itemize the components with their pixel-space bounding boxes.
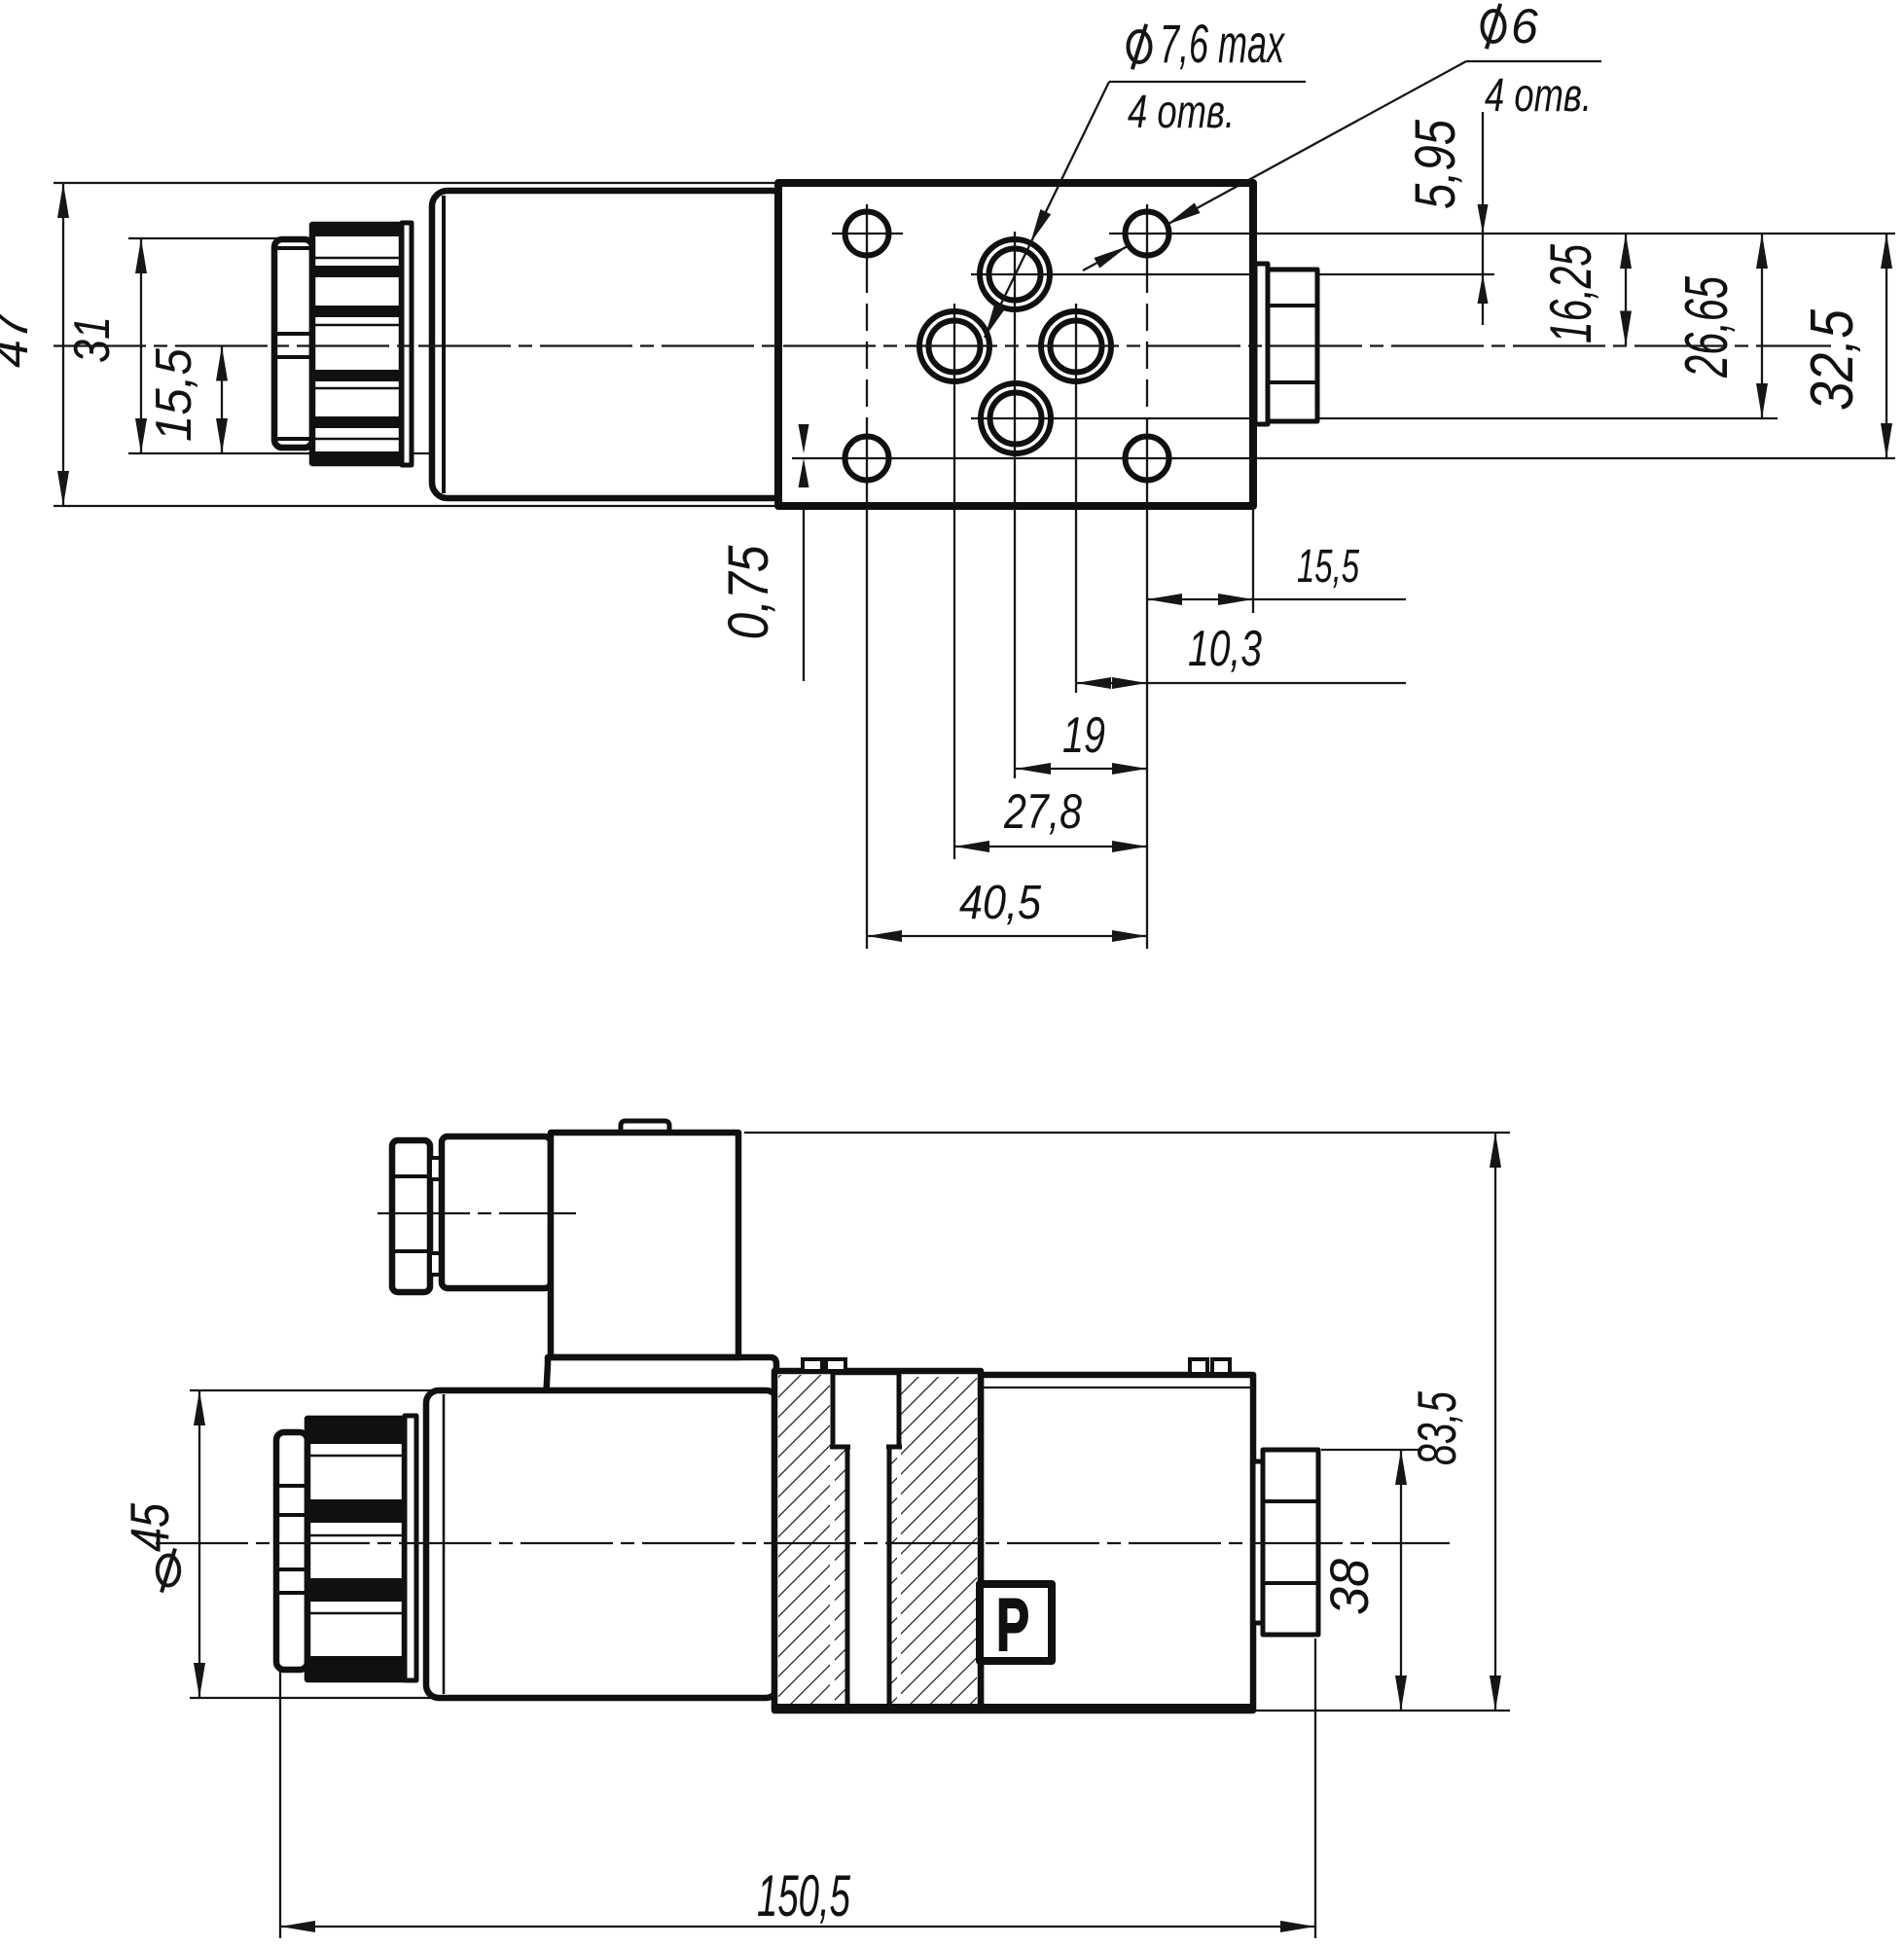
svg-text:26,65: 26,65 xyxy=(1673,276,1741,378)
svg-text:31: 31 xyxy=(64,316,121,363)
svg-text:6: 6 xyxy=(1511,0,1538,54)
svg-text:19: 19 xyxy=(1062,707,1105,764)
svg-text:7,6 max: 7,6 max xyxy=(1160,13,1285,74)
svg-text:4 отв.: 4 отв. xyxy=(1485,70,1592,122)
svg-text:47: 47 xyxy=(0,309,39,368)
svg-text:38: 38 xyxy=(1318,1559,1380,1615)
svg-text:5,95: 5,95 xyxy=(1404,119,1467,209)
svg-text:27,8: 27,8 xyxy=(1003,784,1082,839)
svg-text:10,3: 10,3 xyxy=(1188,621,1262,677)
svg-text:4 отв.: 4 отв. xyxy=(1128,87,1235,138)
svg-text:83,5: 83,5 xyxy=(1406,1390,1467,1465)
svg-text:15,5: 15,5 xyxy=(1297,541,1359,593)
svg-text:32,5: 32,5 xyxy=(1799,309,1866,411)
svg-text:40,5: 40,5 xyxy=(959,877,1042,929)
svg-text:45: 45 xyxy=(119,1502,180,1552)
svg-text:15,5: 15,5 xyxy=(146,347,202,442)
svg-text:P: P xyxy=(996,1584,1029,1667)
svg-text:16,25: 16,25 xyxy=(1538,244,1603,343)
svg-text:0,75: 0,75 xyxy=(717,545,780,640)
svg-text:150,5: 150,5 xyxy=(757,1863,850,1928)
